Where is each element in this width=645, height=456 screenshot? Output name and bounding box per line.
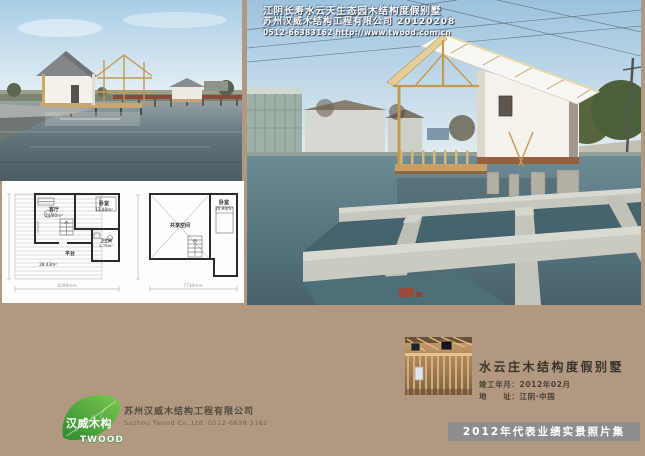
project-info: 水云庄木结构度假别墅 竣工年月：2012年02月 地 址：江阴·中国 — [479, 358, 624, 403]
photo-interior-framing — [405, 337, 472, 395]
floorplan-drawing: 客厅 24.80m² 卧室 11.48m² 卫生间 4.78m² 平台 28.4… — [2, 181, 244, 303]
floorplan-first-floor: 客厅 24.80m² 卧室 11.48m² 卫生间 4.78m² 平台 28.4… — [7, 194, 119, 292]
construction-illustration — [247, 0, 641, 305]
footer-banner: 2012年代表业绩实景照片集 — [448, 422, 640, 441]
photo-main-construction: 江阴长寿水云天生态园木结构度假别墅 苏州汉威木结构工程有限公司 20120208… — [247, 0, 641, 305]
footer-banner-text: 2012年代表业绩实景照片集 — [463, 424, 625, 439]
photo-caption-overlay: 江阴长寿水云天生态园木结构度假别墅 苏州汉威木结构工程有限公司 20120208… — [263, 6, 455, 38]
area-bathroom: 4.78m² — [99, 243, 113, 248]
area-living-room: 24.80m² — [45, 213, 63, 218]
caption-line-1: 江阴长寿水云天生态园木结构度假别墅 — [263, 6, 455, 17]
company-block: 苏州汉威木结构工程有限公司 Suzhou Twood Co.,Ltd. 0512… — [124, 404, 268, 427]
caption-line-2: 苏州汉威木结构工程有限公司 20120208 — [263, 17, 455, 28]
label-bedroom-2: 卧室 — [219, 199, 229, 206]
label-shared-space: 共享空间 — [170, 222, 190, 229]
label-living-room: 客厅 — [48, 206, 59, 213]
floorplan-second-floor: 共享空间 卧室 20.90m² 7730mm — [136, 194, 237, 292]
lake-houses-illustration — [0, 0, 242, 181]
project-address: 地 址：江阴·中国 — [479, 391, 624, 403]
company-name-cn: 苏州汉威木结构工程有限公司 — [124, 404, 268, 417]
area-deck: 28.43m² — [39, 262, 57, 267]
company-logo: 汉威木构 TWOOD — [58, 392, 124, 446]
area-bedroom-1: 11.48m² — [95, 207, 113, 212]
project-title: 水云庄木结构度假别墅 — [479, 358, 624, 375]
area-bedroom-2: 20.90m² — [215, 206, 233, 211]
company-name-en: Suzhou Twood Co.,Ltd. 0512-6638 3162 — [124, 419, 268, 427]
floorplan-panel: 客厅 24.80m² 卧室 11.48m² 卫生间 4.78m² 平台 28.4… — [2, 181, 244, 303]
dimension-first-floor-width: 8290mm — [57, 283, 76, 289]
label-deck: 平台 — [65, 250, 75, 257]
logo-name-en: TWOOD — [80, 435, 124, 445]
label-bedroom-1: 卧室 — [99, 200, 109, 207]
project-completion: 竣工年月：2012年02月 — [479, 379, 624, 391]
caption-line-3: 0512-66383162 http://www.twood.com.cn — [263, 28, 455, 38]
logo-name-cn: 汉威木构 — [66, 416, 112, 430]
photo-lake-houses — [0, 0, 242, 181]
brochure-page: 江阴长寿水云天生态园木结构度假别墅 苏州汉威木结构工程有限公司 20120208… — [0, 0, 645, 456]
dimension-second-floor-width: 7730mm — [183, 283, 202, 289]
logo-leaf-icon: 汉威木构 TWOOD — [58, 392, 124, 446]
interior-framing-illustration — [405, 337, 472, 395]
